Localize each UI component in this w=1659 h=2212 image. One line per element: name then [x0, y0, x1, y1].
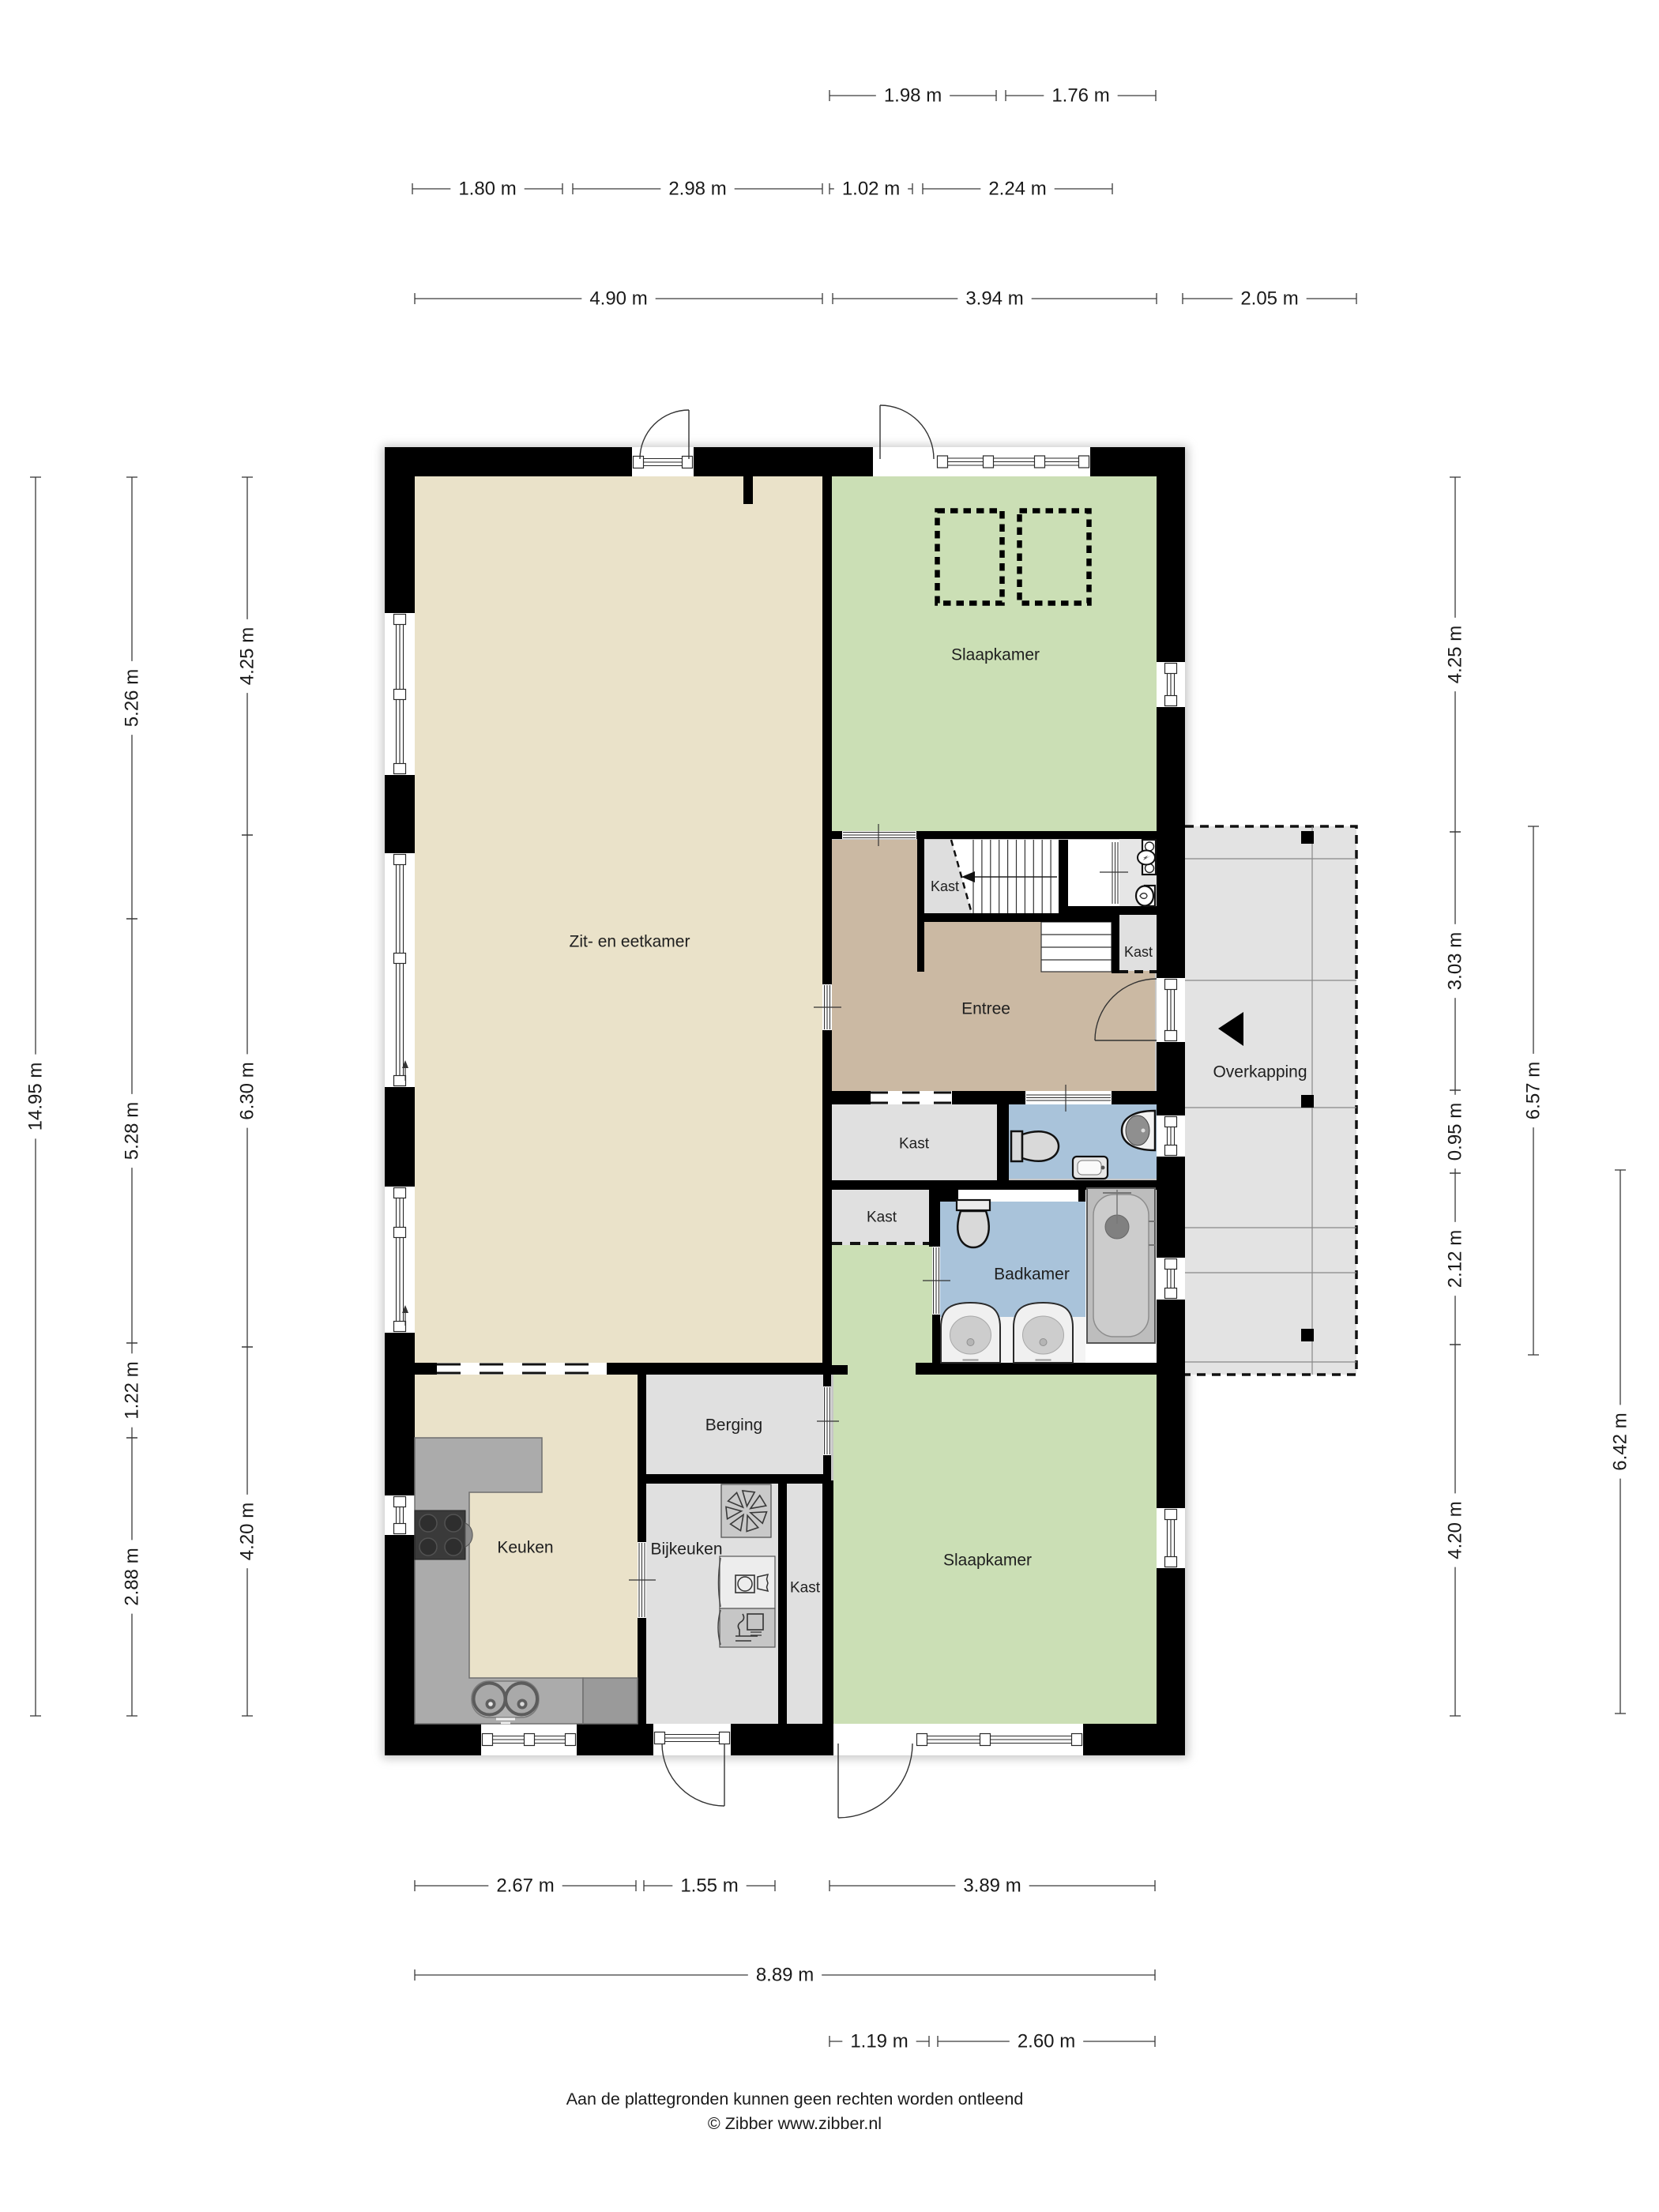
svg-text:14.95 m: 14.95 m	[25, 1063, 47, 1131]
svg-text:1.22 m: 1.22 m	[122, 1361, 143, 1419]
svg-text:Slaapkamer: Slaapkamer	[943, 1552, 1032, 1570]
svg-text:3.03 m: 3.03 m	[1445, 932, 1466, 990]
svg-text:Slaapkamer: Slaapkamer	[951, 646, 1040, 664]
svg-text:5.28 m: 5.28 m	[122, 1102, 143, 1160]
svg-text:5.26 m: 5.26 m	[122, 669, 143, 727]
svg-text:Kast: Kast	[1124, 944, 1153, 960]
svg-text:3.94 m: 3.94 m	[965, 288, 1023, 310]
svg-text:6.57 m: 6.57 m	[1523, 1062, 1544, 1119]
svg-text:Overkapping: Overkapping	[1213, 1063, 1307, 1082]
svg-text:1.80 m: 1.80 m	[458, 179, 516, 200]
svg-text:2.88 m: 2.88 m	[122, 1548, 143, 1605]
svg-text:2.67 m: 2.67 m	[496, 1875, 554, 1897]
svg-text:Badkamer: Badkamer	[994, 1266, 1070, 1284]
svg-text:3.89 m: 3.89 m	[963, 1875, 1021, 1897]
svg-text:4.20 m: 4.20 m	[1445, 1501, 1466, 1559]
svg-text:Entree: Entree	[961, 1000, 1010, 1018]
svg-text:2.12 m: 2.12 m	[1445, 1230, 1466, 1288]
svg-text:8.89 m: 8.89 m	[756, 1965, 814, 1986]
svg-text:Zit- en eetkamer: Zit- en eetkamer	[570, 933, 690, 951]
svg-text:1.02 m: 1.02 m	[842, 179, 900, 200]
svg-text:Kast: Kast	[867, 1209, 897, 1226]
svg-text:2.05 m: 2.05 m	[1240, 288, 1298, 310]
svg-text:Kast: Kast	[790, 1580, 821, 1597]
svg-text:Bijkeuken: Bijkeuken	[650, 1540, 722, 1559]
svg-text:4.25 m: 4.25 m	[237, 627, 258, 685]
svg-text:4.20 m: 4.20 m	[237, 1503, 258, 1560]
svg-text:6.42 m: 6.42 m	[1610, 1413, 1631, 1470]
svg-text:1.19 m: 1.19 m	[850, 2031, 908, 2052]
svg-text:Kast: Kast	[899, 1136, 930, 1153]
svg-text:Berging: Berging	[705, 1416, 762, 1435]
svg-text:Aan de plattegronden kunnen ge: Aan de plattegronden kunnen geen rechten…	[566, 2090, 1024, 2109]
svg-text:2.24 m: 2.24 m	[988, 179, 1046, 200]
svg-text:0.95 m: 0.95 m	[1445, 1103, 1466, 1161]
svg-text:Keuken: Keuken	[497, 1539, 553, 1557]
svg-text:1.76 m: 1.76 m	[1051, 85, 1109, 107]
svg-text:2.98 m: 2.98 m	[668, 179, 726, 200]
svg-text:4.90 m: 4.90 m	[589, 288, 647, 310]
svg-text:1.98 m: 1.98 m	[884, 85, 942, 107]
svg-text:2.60 m: 2.60 m	[1018, 2031, 1075, 2052]
svg-text:1.55 m: 1.55 m	[680, 1875, 738, 1897]
svg-text:4.25 m: 4.25 m	[1445, 626, 1466, 683]
svg-text:Kast: Kast	[931, 878, 959, 894]
svg-text:© Zibber www.zibber.nl: © Zibber www.zibber.nl	[708, 2114, 882, 2133]
svg-text:6.30 m: 6.30 m	[237, 1062, 258, 1119]
